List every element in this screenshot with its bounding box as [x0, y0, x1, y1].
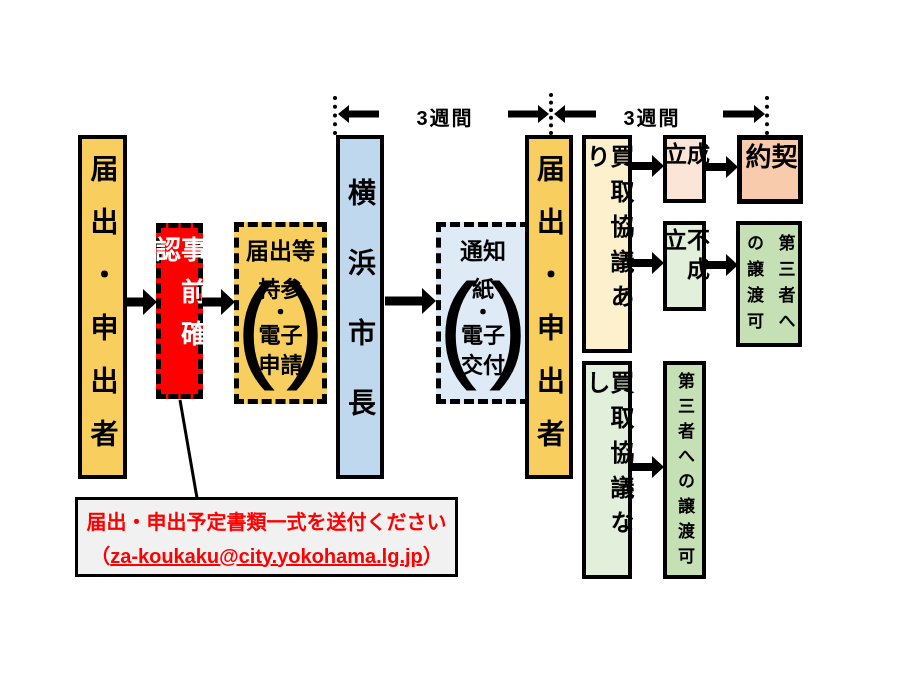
transfer-allowed-bottom-label: 第三者への譲渡可	[676, 372, 693, 572]
mayor-box: 横浜市長	[336, 135, 384, 479]
flow-arrow-2	[202, 289, 235, 315]
measure-arrow-right-1	[508, 105, 549, 123]
notice-bracket-left: (	[438, 267, 477, 385]
flow-arrow-transfer-bottom	[631, 456, 664, 478]
submission-bracket-right: )	[286, 267, 325, 385]
dotted-line-2	[549, 93, 553, 135]
flow-arrow-1	[127, 289, 157, 315]
not-established-box: 不成立	[663, 221, 706, 311]
flow-arrow-3	[385, 288, 436, 314]
note-email-link[interactable]: za-koukaku@city.yokohama.lg.jp	[110, 546, 423, 568]
applicant-right-label: 届出・申出者	[535, 154, 563, 472]
dotted-line-1	[333, 96, 337, 135]
measure-arrow-right-2	[723, 105, 765, 123]
applicant-left-box: 届出・申出者	[78, 135, 127, 479]
mayor-label: 横浜市長	[346, 178, 374, 458]
measure-arrow-left-2	[554, 105, 596, 123]
transfer-allowed-top-label: 第三者へ の譲渡可	[738, 234, 801, 338]
measure-label-3weeks-1: 3週間	[403, 102, 487, 131]
transfer-allowed-bottom-box: 第三者への譲渡可	[663, 361, 706, 579]
flow-arrow-transfer-top	[704, 254, 738, 276]
note-paren-open: （	[90, 546, 110, 568]
note-line-2: （za-koukaku@city.yokohama.lg.jp）	[90, 540, 443, 569]
note-paren-close: ）	[423, 546, 443, 568]
applicant-left-label: 届出・申出者	[89, 154, 117, 472]
negotiation-yes-box: 買取協議あり	[582, 135, 632, 353]
flowchart-canvas: 3週間 3週間 届出・申出者 事前確認 届出等 持参 ・ 電子 申請 ( ) 横…	[0, 0, 900, 695]
notice-bracket-right: )	[489, 267, 528, 385]
established-label: 成立	[662, 142, 708, 199]
pre-check-label: 事前確認	[154, 236, 206, 394]
not-established-label: 不成立	[662, 228, 708, 307]
submission-bracket-left: (	[236, 267, 275, 385]
notice-box: 通知 紙 ・ 電子 交付 ( )	[436, 222, 530, 404]
flow-arrow-not-established	[631, 252, 664, 274]
contract-label: 契約	[744, 143, 796, 199]
dotted-line-3	[765, 96, 769, 135]
negotiation-no-box: 買取協議なし	[582, 361, 632, 579]
flow-arrow-established	[631, 155, 664, 177]
flow-arrow-contract	[705, 156, 738, 178]
note-box: 届出・申出予定書類一式を送付ください （za-koukaku@city.yoko…	[75, 497, 458, 577]
negotiation-no-label: 買取協議なし	[583, 370, 631, 575]
submission-box: 届出等 持参 ・ 電子 申請 ( )	[234, 222, 327, 404]
contract-box: 契約	[737, 135, 803, 204]
measure-label-3weeks-2: 3週間	[610, 102, 694, 131]
negotiation-yes-label: 買取協議あり	[583, 144, 631, 349]
measure-arrow-left-1	[338, 105, 379, 123]
transfer-allowed-top-box: 第三者へ の譲渡可	[736, 221, 802, 347]
applicant-right-box: 届出・申出者	[525, 135, 573, 479]
established-box: 成立	[663, 135, 706, 203]
note-line-1: 届出・申出予定書類一式を送付ください	[87, 506, 447, 535]
pre-check-box: 事前確認	[156, 223, 203, 399]
